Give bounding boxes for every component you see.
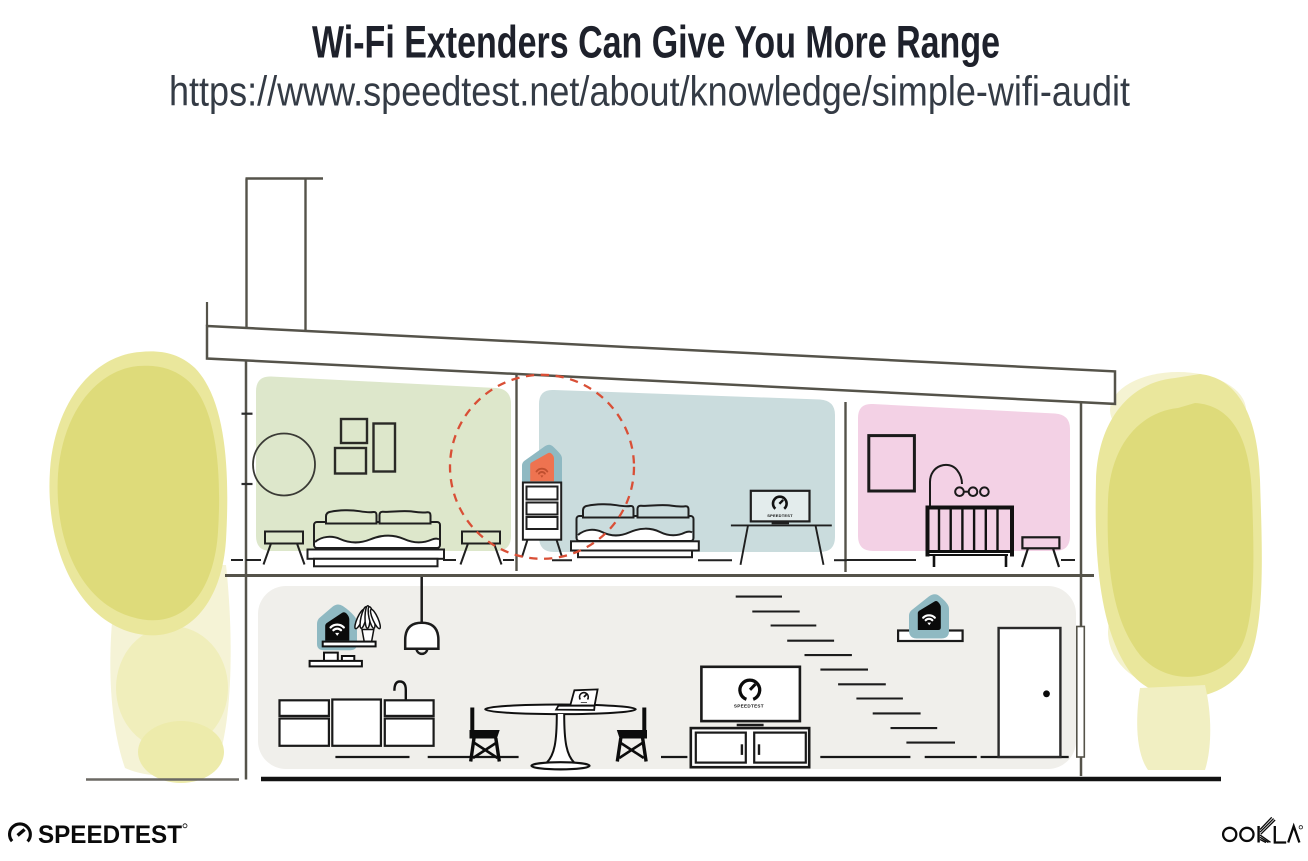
svg-text:https://www.speedtest.net/abou: https://www.speedtest.net/about/knowledg… <box>169 68 1130 115</box>
svg-text:SPEEDTEST: SPEEDTEST <box>38 821 182 849</box>
svg-text:Wi-Fi Extenders Can Give You M: Wi-Fi Extenders Can Give You More Range <box>312 16 1000 67</box>
svg-text:SPEEDTEST: SPEEDTEST <box>734 703 764 708</box>
svg-text:SPEEDTEST: SPEEDTEST <box>767 513 793 518</box>
